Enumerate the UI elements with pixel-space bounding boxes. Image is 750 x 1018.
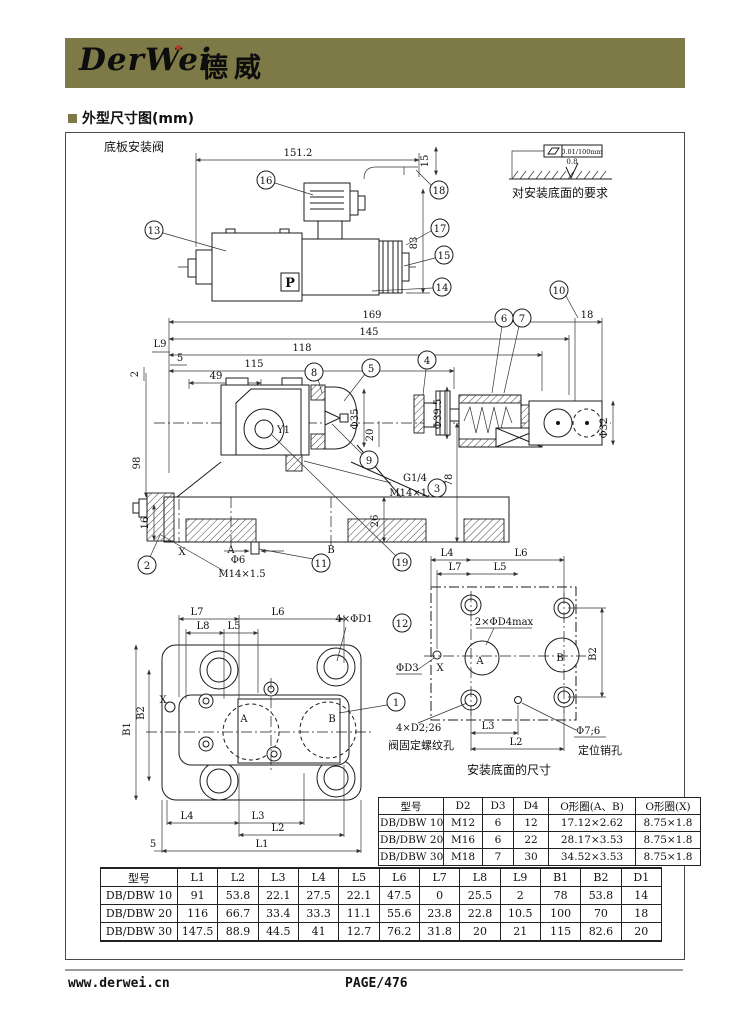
table-cell: 53.8 [218, 887, 258, 905]
svg-text:7: 7 [519, 314, 525, 325]
dim-phiD3: ΦD3 [396, 663, 419, 674]
dim-L9: L9 [153, 339, 166, 350]
port-label-b: B [327, 545, 334, 556]
logo-dot-icon [176, 45, 181, 50]
dim-bl-L6: L6 [271, 607, 284, 618]
table-row: DB/DBW 30147.588.944.54112.776.231.82021… [101, 923, 662, 942]
table-cell: 88.9 [218, 923, 258, 942]
table-cell: 22.8 [460, 905, 500, 923]
table-cell: 23.8 [419, 905, 459, 923]
table-cell: DB/DBW 30 [379, 849, 444, 866]
table-cell: 14 [621, 887, 661, 905]
table-cell: 115 [540, 923, 580, 942]
column-header: 型号 [101, 868, 178, 887]
dim-145: 145 [359, 327, 378, 338]
middle-view-drawing: 169 18 145 118 115 49 L9 5 2 [130, 281, 613, 580]
callout-11: 11 [259, 549, 330, 572]
top-view-drawing: 底板安装阀 P [104, 139, 453, 301]
svg-text:4: 4 [424, 356, 430, 367]
column-header: D2 [444, 798, 483, 815]
dim-26: 26 [370, 515, 381, 528]
table-cell: M18 [444, 849, 483, 866]
column-header: L3 [258, 868, 298, 887]
table-row: DB/DBW 20M1662228.17×3.538.75×1.8 [379, 832, 701, 849]
table-cell: 33.4 [258, 905, 298, 923]
table-cell: 34.52×3.53 [549, 849, 636, 866]
table-cell: M12 [444, 815, 483, 832]
table-cell: DB/DBW 20 [379, 832, 444, 849]
dim-br-L3: L3 [481, 721, 494, 732]
table-row: DB/DBW 2011666.733.433.311.155.623.822.8… [101, 905, 662, 923]
table-cell: 47.5 [379, 887, 419, 905]
table-row: DB/DBW 109153.822.127.522.147.5025.52785… [101, 887, 662, 905]
column-header: D1 [621, 868, 661, 887]
table-cell: 44.5 [258, 923, 298, 942]
callout-4: 4 [418, 351, 436, 395]
bottom-right-view-drawing: X A B L4 L6 L7 L5 2×ΦD4max ΦD3 B2 [388, 548, 622, 777]
svg-text:1: 1 [393, 698, 399, 709]
table-cell: DB/DBW 30 [101, 923, 178, 942]
dim-br-B2: B2 [588, 647, 599, 661]
table-cell: 8.75×1.8 [636, 849, 701, 866]
column-header: L5 [339, 868, 379, 887]
dim-98: 98 [132, 457, 143, 470]
table-cell: 8.75×1.8 [636, 815, 701, 832]
table-cell: 78 [540, 887, 580, 905]
port-label-y1: Y1 [276, 425, 290, 436]
svg-text:9: 9 [366, 456, 372, 467]
dim-118: 118 [292, 343, 311, 354]
column-header: O形圈(X) [636, 798, 701, 815]
dim-bl-L4: L4 [180, 811, 193, 822]
dim-bl-B1: B1 [122, 722, 133, 736]
dim-pin-hole: Φ7;6 [576, 726, 600, 737]
table-cell: 12.7 [339, 923, 379, 942]
svg-text:2: 2 [144, 561, 150, 572]
table-cell: 28.17×3.53 [549, 832, 636, 849]
svg-text:14: 14 [436, 283, 449, 294]
table-cell: 147.5 [178, 923, 218, 942]
dim-br-L7: L7 [448, 562, 461, 573]
svg-text:3: 3 [434, 484, 440, 495]
dim-5: 5 [177, 353, 183, 364]
table-cell: 33.3 [298, 905, 338, 923]
table-cell: 100 [540, 905, 580, 923]
dim-bl-L2: L2 [271, 823, 284, 834]
bl-port-label-a: A [239, 714, 248, 725]
table-cell: 22.1 [258, 887, 298, 905]
table-cell: 18 [621, 905, 661, 923]
callout-10: 10 [550, 281, 578, 318]
column-header: O形圈(A、B) [549, 798, 636, 815]
surface-req-caption: 对安装底面的要求 [512, 185, 608, 200]
svg-text:8: 8 [311, 368, 317, 379]
dim-bl-L1: L1 [255, 839, 268, 850]
oring-spec-table: 型号D2D3D4O形圈(A、B)O形圈(X)DB/DBW 10M1261217.… [378, 797, 701, 866]
dim-115: 115 [244, 359, 263, 370]
dim-20: 20 [365, 429, 376, 442]
callout-6: 6 [492, 309, 513, 393]
svg-text:18: 18 [433, 186, 446, 197]
dim-18: 18 [581, 310, 594, 321]
table-cell: M16 [444, 832, 483, 849]
column-header: D3 [483, 798, 514, 815]
table-row: DB/DBW 30M1873034.52×3.538.75×1.8 [379, 849, 701, 866]
dim-bl-L7: L7 [190, 607, 203, 618]
svg-text:6: 6 [501, 314, 507, 325]
dim-bl-L5: L5 [227, 621, 240, 632]
dim-49: 49 [210, 371, 223, 382]
svg-text:12: 12 [396, 619, 409, 630]
svg-text:15: 15 [438, 251, 451, 262]
footer-site-url: www.derwei.cn [68, 976, 170, 991]
top-view-caption: 底板安装阀 [104, 139, 164, 154]
table-cell: DB/DBW 10 [379, 815, 444, 832]
table-cell: 20 [621, 923, 661, 942]
table-cell: DB/DBW 20 [101, 905, 178, 923]
table-cell: DB/DBW 10 [101, 887, 178, 905]
column-header: L7 [419, 868, 459, 887]
table-cell: 41 [298, 923, 338, 942]
bl-port-label-b: B [328, 714, 335, 725]
column-header: L9 [500, 868, 540, 887]
flatness-value: 0.01/100mm [561, 148, 602, 156]
table-cell: 11.1 [339, 905, 379, 923]
section-bullet-icon [68, 114, 77, 123]
table-cell: 55.6 [379, 905, 419, 923]
dim-bl-L8: L8 [196, 621, 209, 632]
brand-logo-latin: DerWei [79, 42, 212, 78]
table-cell: 53.8 [581, 887, 621, 905]
callout-3: 3 [428, 479, 446, 497]
footer-divider [65, 969, 683, 971]
surface-requirement-symbol: 0.01/100mm 0.8 对安装底面的要求 [509, 145, 612, 200]
table-cell: 8.75×1.8 [636, 832, 701, 849]
dim-151-2: 151.2 [284, 148, 313, 159]
section-title: 外型尺寸图(mm) [68, 108, 194, 128]
column-header: D4 [514, 798, 549, 815]
svg-text:10: 10 [553, 286, 566, 297]
dim-2xphiD4max: 2×ΦD4max [475, 617, 534, 628]
table-cell: 27.5 [298, 887, 338, 905]
column-header: 型号 [379, 798, 444, 815]
dim-br-L6: L6 [514, 548, 527, 559]
table-cell: 17.12×2.62 [549, 815, 636, 832]
dim-bl-B2: B2 [136, 706, 147, 720]
footer-page-number: PAGE/476 [345, 976, 408, 991]
table-cell: 22 [514, 832, 549, 849]
dim-phi6: Φ6 [231, 555, 246, 566]
thread-hole-note: 阀固定螺纹孔 [388, 738, 454, 752]
bottom-left-view-drawing: X A B L7 L6 L8 L5 4×ΦD1 12 1 [122, 607, 411, 853]
svg-text:13: 13 [148, 226, 161, 237]
dimension-table: 型号L1L2L3L4L5L6L7L8L9B1B2D1DB/DBW 109153.… [100, 867, 662, 942]
dim-4xD2-26: 4×D2;26 [396, 723, 441, 734]
dim-bl-5: 5 [150, 839, 156, 850]
dim-15: 15 [420, 155, 431, 168]
svg-text:11: 11 [315, 559, 328, 570]
table-cell: 31.8 [419, 923, 459, 942]
dim-phi35: Φ35 [350, 409, 361, 430]
brand-logo-cn: 德威 [201, 46, 267, 85]
table-cell: 25.5 [460, 887, 500, 905]
thread-label-m14-bottom: M14×1.5 [218, 569, 265, 580]
column-header: B2 [581, 868, 621, 887]
table-cell: 116 [178, 905, 218, 923]
table-cell: 7 [483, 849, 514, 866]
column-header: L8 [460, 868, 500, 887]
table-cell: 30 [514, 849, 549, 866]
table-cell: 0 [419, 887, 459, 905]
br-port-label-a: A [475, 656, 484, 667]
header-brand-bar: DerWei 德威 [65, 38, 685, 88]
table-cell: 10.5 [500, 905, 540, 923]
dim-2: 2 [130, 371, 141, 377]
dim-4xphiD1: 4×ΦD1 [335, 614, 372, 625]
svg-text:19: 19 [396, 558, 409, 569]
br-port-label-b: B [556, 653, 563, 664]
roughness-value: 0.8 [566, 158, 577, 166]
column-header: L6 [379, 868, 419, 887]
dim-bl-L3: L3 [251, 811, 264, 822]
column-header: L4 [298, 868, 338, 887]
br-port-label-x: X [436, 663, 444, 674]
table-cell: 21 [500, 923, 540, 942]
hatch-ground-icon [512, 171, 606, 179]
thread-label-g14: G1/4 [403, 473, 427, 484]
dim-169: 169 [362, 310, 381, 321]
table-cell: 6 [483, 815, 514, 832]
dim-br-L5: L5 [493, 562, 506, 573]
bl-port-label-x: X [159, 695, 167, 706]
table-cell: 91 [178, 887, 218, 905]
callout-18: 18 [416, 170, 448, 199]
dim-83: 83 [409, 237, 420, 250]
dim-phi32: Φ32 [599, 418, 610, 439]
table-cell: 20 [460, 923, 500, 942]
callout-17: 17 [406, 219, 449, 245]
column-header: L2 [218, 868, 258, 887]
column-header: L1 [178, 868, 218, 887]
dim-phi39-5: Φ39.5 [433, 399, 444, 429]
table-cell: 82.6 [581, 923, 621, 942]
table-cell: 66.7 [218, 905, 258, 923]
dim-br-L4: L4 [440, 548, 453, 559]
section-title-text: 外型尺寸图(mm) [82, 111, 194, 127]
dim-br-L2: L2 [509, 737, 522, 748]
svg-text:5: 5 [368, 364, 374, 375]
catalog-page: DerWei 德威 外型尺寸图(mm) 底板安装阀 [0, 0, 750, 1018]
table-row: DB/DBW 10M1261217.12×2.628.75×1.8 [379, 815, 701, 832]
table-cell: 76.2 [379, 923, 419, 942]
pin-hole-note: 定位销孔 [578, 743, 622, 757]
dim-16: 16 [140, 517, 151, 530]
p-port-label: P [285, 276, 295, 291]
table-cell: 2 [500, 887, 540, 905]
table-cell: 12 [514, 815, 549, 832]
svg-text:17: 17 [434, 224, 447, 235]
table-cell: 70 [581, 905, 621, 923]
svg-text:16: 16 [260, 176, 273, 187]
table-cell: 22.1 [339, 887, 379, 905]
column-header: B1 [540, 868, 580, 887]
table-cell: 6 [483, 832, 514, 849]
mounting-face-caption: 安装底面的尺寸 [467, 762, 551, 777]
